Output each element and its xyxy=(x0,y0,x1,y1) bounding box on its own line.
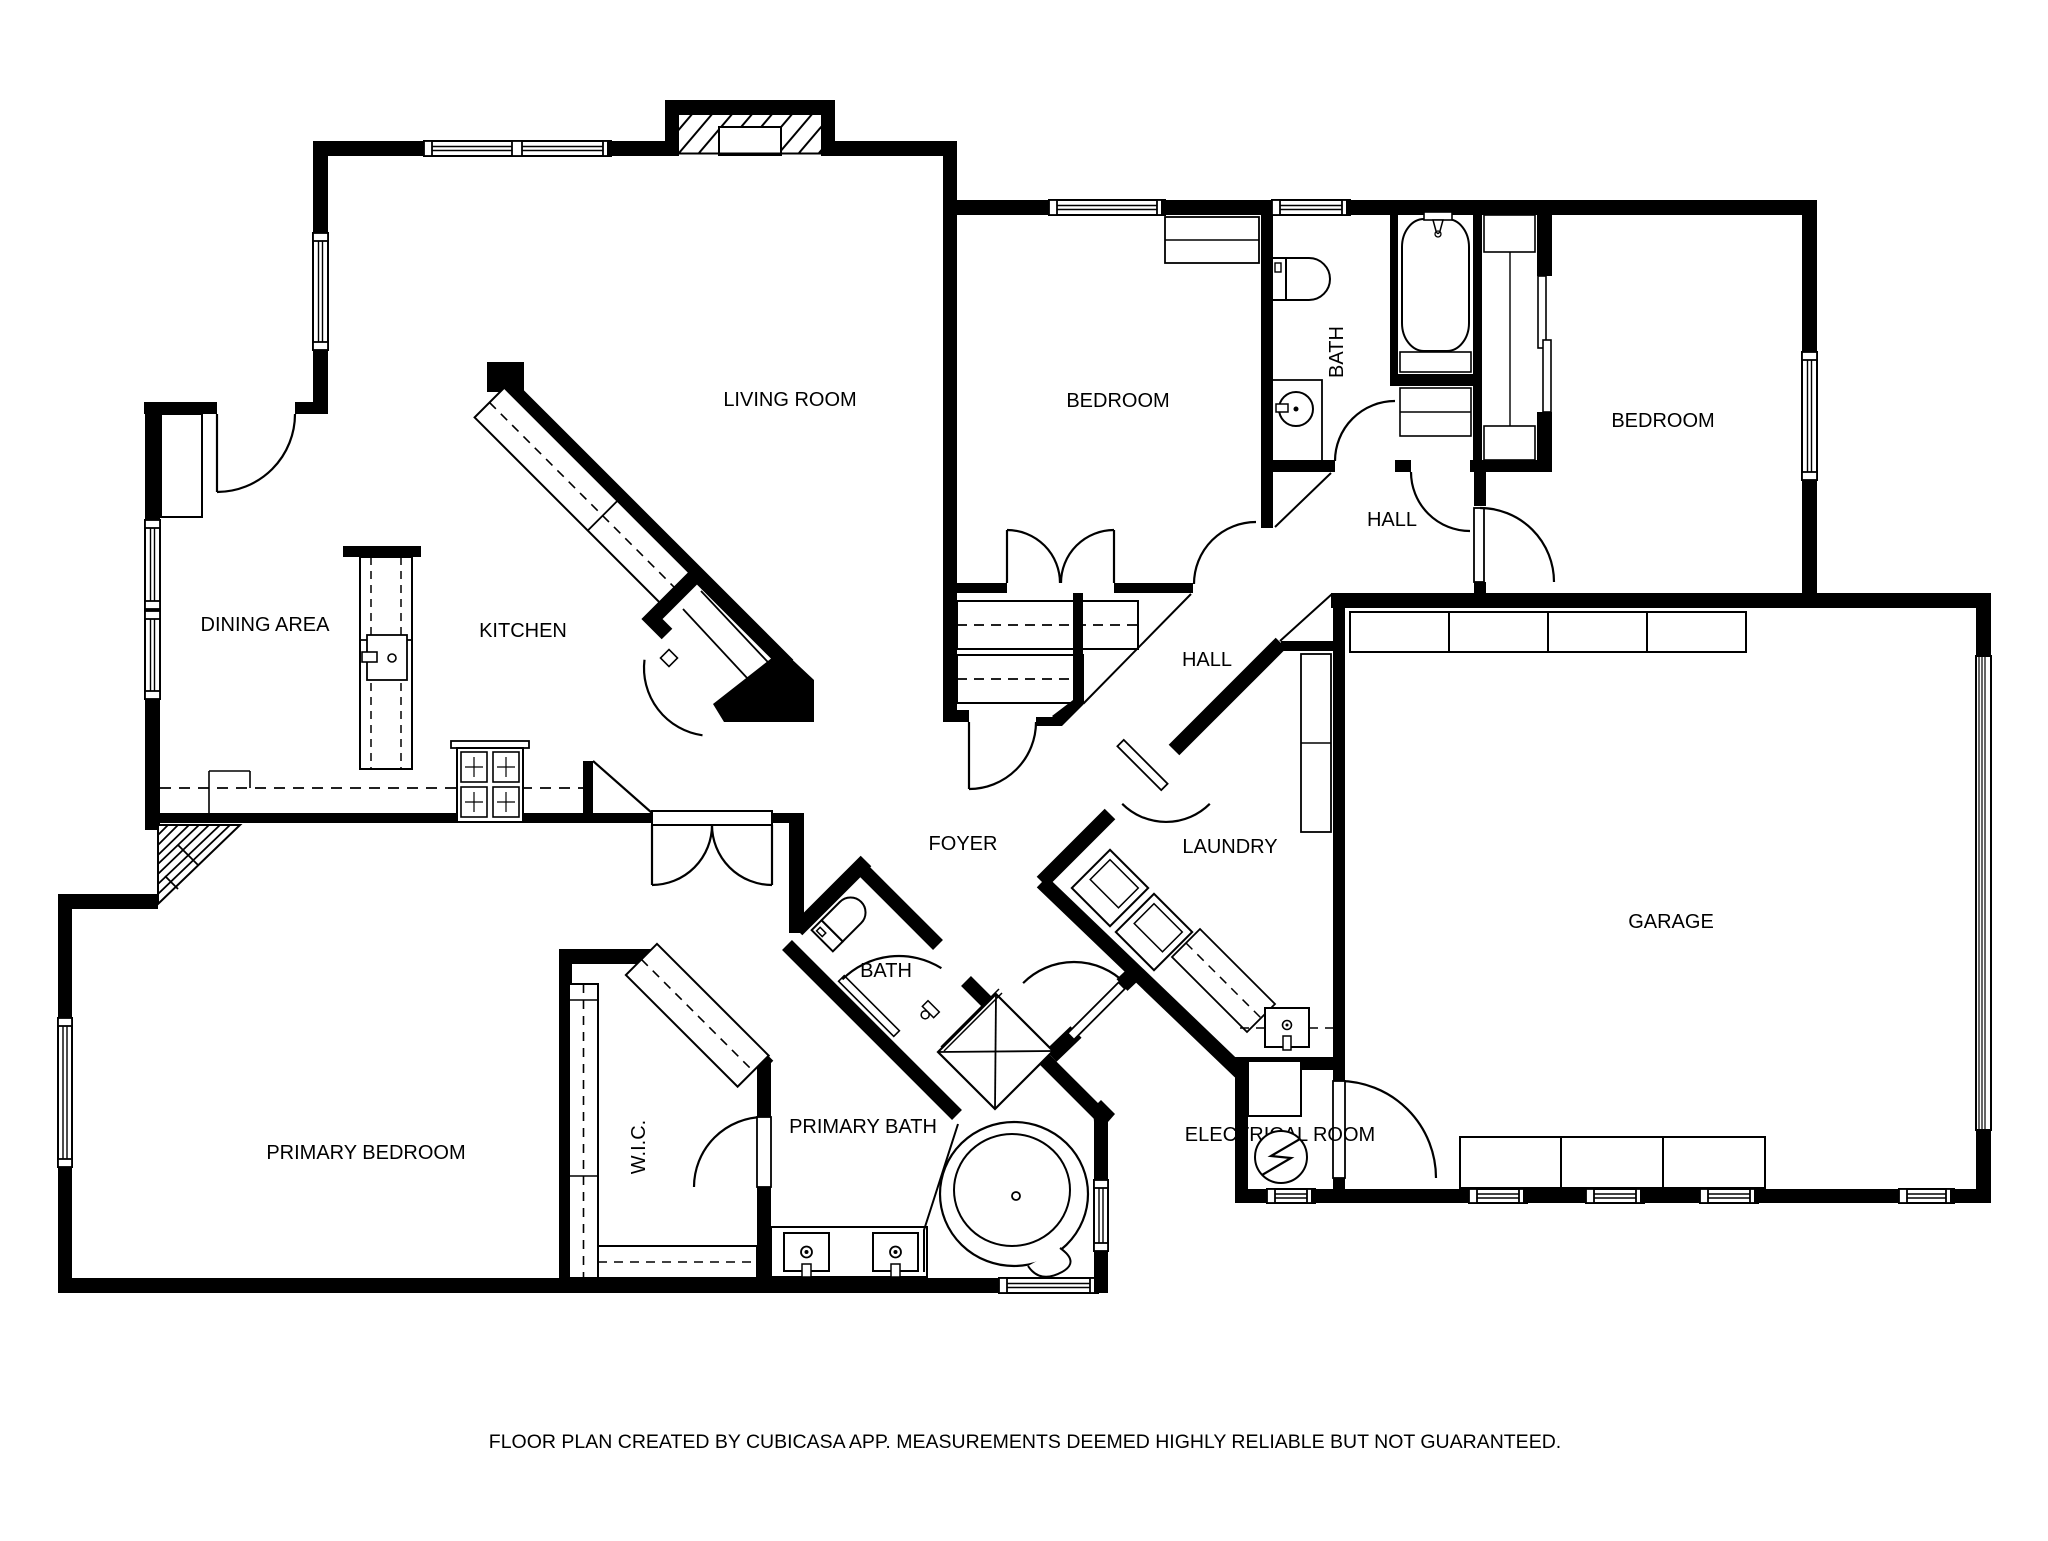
svg-text:HALL: HALL xyxy=(1182,649,1232,671)
svg-text:BATH: BATH xyxy=(1326,326,1348,378)
svg-text:FLOOR PLAN CREATED BY CUBICASA: FLOOR PLAN CREATED BY CUBICASA APP. MEAS… xyxy=(489,1431,1561,1453)
svg-text:BEDROOM: BEDROOM xyxy=(1611,410,1714,432)
svg-text:KITCHEN: KITCHEN xyxy=(479,620,567,642)
svg-text:FOYER: FOYER xyxy=(929,833,998,855)
svg-text:HALL: HALL xyxy=(1367,509,1417,531)
svg-text:LIVING ROOM: LIVING ROOM xyxy=(723,389,856,411)
svg-text:GARAGE: GARAGE xyxy=(1628,911,1714,933)
svg-text:LAUNDRY: LAUNDRY xyxy=(1182,836,1277,858)
svg-text:BATH: BATH xyxy=(860,960,912,982)
svg-text:PRIMARY BATH: PRIMARY BATH xyxy=(789,1116,937,1138)
svg-text:DINING AREA: DINING AREA xyxy=(201,614,331,636)
svg-text:PRIMARY BEDROOM: PRIMARY BEDROOM xyxy=(266,1142,465,1164)
svg-text:BEDROOM: BEDROOM xyxy=(1066,390,1169,412)
svg-text:W.I.C.: W.I.C. xyxy=(628,1120,650,1174)
